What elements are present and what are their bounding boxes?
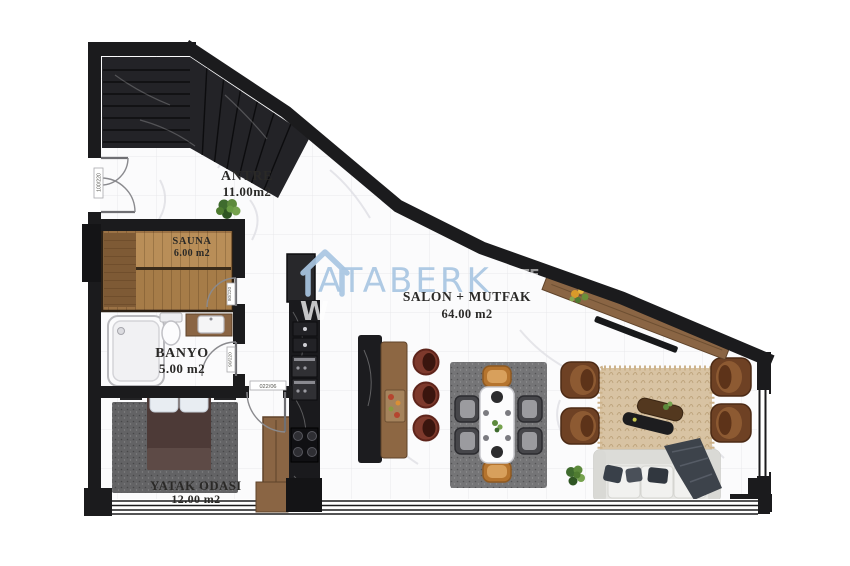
label-sauna-area: 6.00 m2 [174,248,210,259]
armchair [561,408,599,444]
dining-chair-orange [483,366,511,387]
label-sauna: SAUNA [172,236,211,247]
banyo-door-label: 90/220 [228,352,234,367]
armchair [561,362,599,398]
kitchen-island [358,335,407,463]
dining-set [450,362,547,488]
bar-stool [414,416,439,441]
label-antre: ANTRE [221,169,273,184]
dining-chair-gray [455,428,479,454]
bedroom-door-label: 022/06 [259,384,276,390]
bar-stools [414,350,439,441]
sofa-pillow [625,467,643,483]
watermark-fragment-te: TE [519,266,539,284]
oven [292,356,317,377]
sofa-pillow [647,467,668,484]
dining-chair-orange [483,461,511,482]
entrance-door-label: 100/220 [97,173,103,192]
watermark-brand: ATABERK [318,261,492,301]
vanity-sink [186,314,232,336]
bar-stool [414,350,439,375]
label-yatak-odasi-area: 12.00 m2 [171,492,220,506]
bar-stool [414,383,439,408]
label-salon-mutfak-area: 64.00 m2 [441,307,492,321]
armchair [711,404,751,442]
label-yatak-odasi: YATAK ODASI [150,479,241,493]
armchair [711,358,751,396]
sauna-door-label: 80/220 [227,287,232,301]
watermark-fragment-w: W [300,297,329,327]
label-banyo-area: 5.00 m2 [159,361,205,376]
dining-chair-gray [455,396,479,422]
table-plant-icon [668,402,673,407]
kitchen-counter [287,254,320,512]
fridge [287,254,315,302]
floor-plan: 100/220 90/220 80/220 022/06 ANTRE 11.00… [0,0,850,566]
label-antre-area: 11.00m2 [223,184,272,199]
toilet [160,313,182,345]
floorplan-canvas: 100/220 90/220 80/220 022/06 ANTRE 11.00… [0,0,850,566]
label-banyo: BANYO [155,346,209,361]
oven [292,379,317,400]
dining-table [480,387,514,463]
dining-chair-gray [518,428,542,454]
window-right [757,390,769,476]
bed [146,386,212,470]
dining-chair-gray [518,396,542,422]
room-sauna [102,229,233,311]
stove [291,428,318,462]
